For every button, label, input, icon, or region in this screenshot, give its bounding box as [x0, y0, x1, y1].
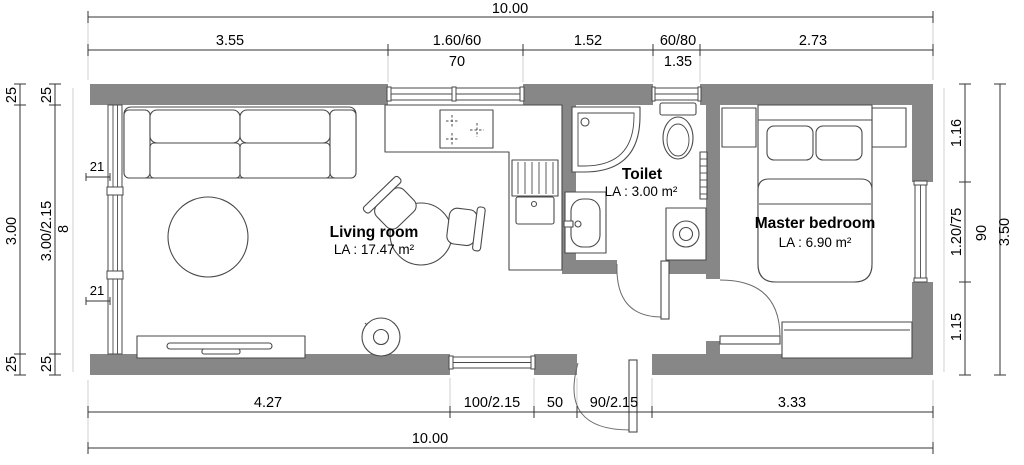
tv-base [202, 349, 240, 354]
sofa-back-cushion [240, 110, 330, 143]
window-kitchen [387, 87, 524, 101]
dim-mullion-2-label: 21 [90, 283, 104, 298]
window-bedroom-right [914, 181, 927, 282]
room-area-master-bedroom: LA : 6.90 m² [779, 235, 852, 250]
dim-bottom-seg-4: 90/2.15 [590, 395, 638, 411]
dim-right-seg-3: 1.15 [949, 313, 965, 341]
shower-drain [581, 118, 589, 126]
dim-top-sill-2: 1.35 [664, 54, 692, 70]
floor-plan-canvas: Living room LA : 17.47 m² Toilet LA : 3.… [0, 0, 1024, 465]
dim-left: 25 3.00 25 25 3.00/2.15 25 8 21 21 [4, 84, 110, 375]
dim-top-seg-3: 1.52 [574, 33, 602, 49]
corner-shower [572, 107, 640, 172]
sofa-armrest [330, 110, 356, 178]
room-label-living-room: Living room [330, 224, 419, 241]
dim-bottom-overall: 10.00 [412, 431, 448, 447]
room-label-toilet: Toilet [622, 166, 662, 183]
washing-machine [666, 208, 706, 260]
dim-top-sill-1: 70 [449, 54, 465, 70]
sofa-seat-cushion [150, 143, 240, 178]
wall-right-upper [912, 84, 933, 182]
round-rug [168, 197, 248, 277]
dim-top-overall: 10.00 [492, 1, 528, 17]
bed-headboard [758, 105, 872, 120]
dim-right-seg-2: 1.20/75 [949, 208, 965, 256]
dim-top-seg-4: 60/80 [660, 33, 696, 49]
dim-right-seg-1: 1.16 [949, 119, 965, 147]
wall-right-lower [912, 282, 933, 375]
window-mullion [107, 187, 123, 195]
wall-top-left [90, 84, 388, 105]
room-area-toilet: LA : 3.00 m² [605, 184, 678, 199]
sink-drain [532, 202, 537, 207]
window-toilet [652, 87, 701, 101]
bedroom-door-leaf [720, 336, 780, 344]
wall-top-middle [523, 84, 653, 105]
double-bed [758, 105, 872, 282]
dim-bottom-seg-3: 50 [547, 395, 563, 411]
pillow [767, 126, 813, 160]
dim-mullion-1-label: 21 [90, 159, 104, 174]
dim-bottom-seg-2: 100/2.15 [464, 395, 520, 411]
dim-left-outer-top: 25 [4, 87, 20, 103]
towel-radiator [700, 152, 707, 199]
tv-stand [137, 336, 305, 358]
wall-top-right [700, 84, 933, 105]
nightstand-left [722, 108, 756, 147]
dim-bottom-seg-1: 4.27 [254, 395, 282, 411]
bedroom-door [720, 280, 780, 344]
sink-basin [516, 197, 554, 224]
dim-right-sill: 90 [974, 225, 990, 241]
dim-bottom: 4.27 100/2.15 50 90/2.15 3.33 10.00 [88, 395, 933, 454]
floor-plan: Living room LA : 17.47 m² Toilet LA : 3.… [0, 0, 1024, 465]
room-label-master-bedroom: Master bedroom [755, 215, 876, 232]
dim-top-seg-5: 2.73 [799, 33, 827, 49]
window-french-bottom [449, 356, 535, 369]
dim-left-outer-mid: 3.00 [4, 217, 20, 245]
dim-mullion-2: 21 [86, 283, 110, 305]
kitchen-sink-unit [512, 160, 558, 224]
dim-left-inner-top: 25 [39, 87, 55, 103]
dresser [782, 322, 912, 358]
wall-bedroom-left [706, 105, 720, 279]
dim-right-overall: 3.50 [997, 218, 1013, 246]
nightstand-right [872, 108, 906, 147]
faucet-icon [564, 221, 573, 227]
wc-toilet [660, 103, 696, 159]
dim-left-inner-mid: 3.00/2.15 [39, 201, 55, 261]
sofa-seat-cushion [240, 143, 330, 178]
wall-toilet-bottom-left [562, 260, 617, 274]
sofa [124, 107, 356, 178]
room-area-living-room: LA : 17.47 m² [334, 242, 415, 257]
pillow [816, 126, 862, 160]
toilet-door-leaf [661, 261, 669, 319]
dim-mullion-1: 21 [86, 159, 110, 181]
sofa-back-cushion [150, 110, 240, 143]
sofa-armrest [124, 110, 150, 178]
dim-bottom-seg-5: 3.33 [778, 395, 806, 411]
dim-top-seg-1: 3.55 [216, 33, 244, 49]
dim-top: 10.00 3.55 1.60/60 1.52 60/80 2.73 70 1.… [88, 1, 933, 70]
drainer [512, 160, 558, 196]
dim-right: 1.16 1.20/75 1.15 90 3.50 [949, 84, 1013, 375]
dining-chair [445, 203, 485, 251]
washbasin [564, 192, 606, 253]
toilet-door [617, 261, 669, 319]
wall-bottom-stub [534, 354, 577, 375]
dim-top-seg-2: 1.60/60 [433, 33, 481, 49]
dim-left-outer-bottom: 25 [4, 356, 20, 372]
tv-screen [167, 343, 272, 349]
cooktop [440, 110, 493, 148]
window-mullion [107, 271, 123, 279]
pouf [362, 318, 400, 356]
dim-left-inner-bottom: 25 [39, 356, 55, 372]
dim-left-sill: 8 [56, 225, 72, 233]
wall-bedroom-left-stub [706, 341, 720, 354]
window-left-glazed-wall [107, 105, 123, 354]
wc-tank [660, 103, 696, 115]
